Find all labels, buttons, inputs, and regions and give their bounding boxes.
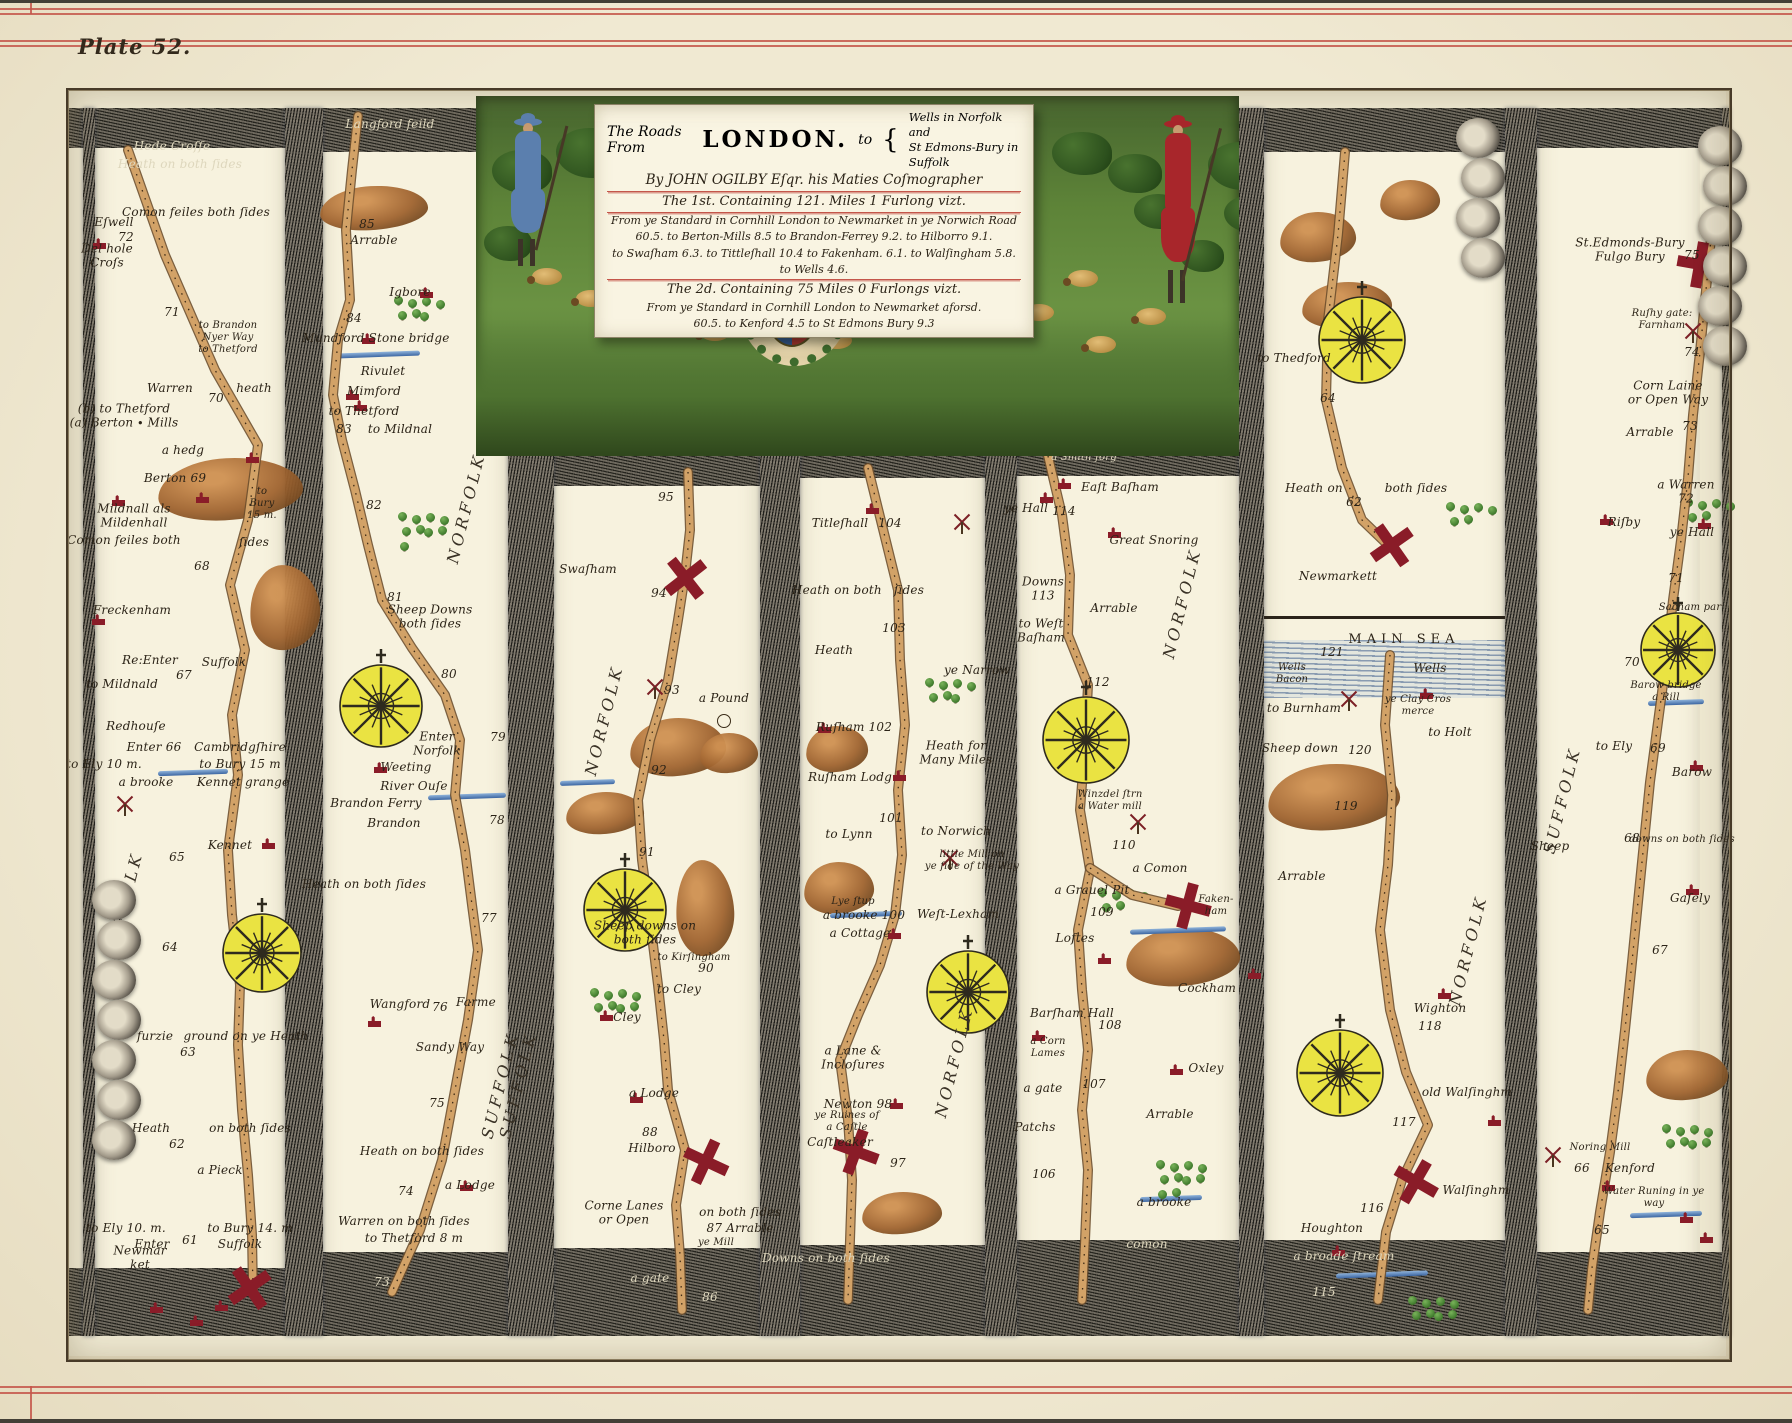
map-label: MAIN SEA — [1348, 632, 1459, 648]
tree-icon — [1156, 1160, 1165, 1169]
map-label: Sheep Downs both ſides — [388, 603, 473, 632]
map-label: Arrable — [1278, 869, 1325, 883]
tree-icon — [1412, 1311, 1421, 1320]
map-label: 93 — [664, 683, 680, 697]
map-label: Heath on both ſides — [302, 877, 426, 891]
windmill-icon — [1544, 1146, 1562, 1168]
map-label: Ruſham Lodg — [808, 770, 892, 784]
map-label: a Corn Lames — [1030, 1036, 1065, 1060]
map-label: Langford feild — [345, 117, 434, 131]
tree-icon — [436, 300, 445, 309]
map-label: 116 — [1360, 1201, 1384, 1215]
sheep-icon — [1086, 336, 1116, 353]
map-label: Gaſely — [1670, 891, 1710, 905]
map-label: 120 — [1348, 743, 1372, 757]
map-label: 103 — [882, 621, 906, 635]
map-label: to Lynn — [825, 827, 872, 841]
tree-icon — [590, 988, 599, 997]
map-label: 83 — [336, 422, 352, 436]
scroll-curl-icon — [1461, 158, 1505, 198]
map-label: a brooke 100 — [823, 908, 905, 922]
map-label: Great Snoring — [1110, 533, 1199, 547]
map-label: a Lodge — [629, 1086, 679, 1100]
map-label: Corn Laine or Open Way — [1628, 379, 1708, 408]
photo-top-edge — [0, 0, 1792, 3]
cartouche-row: 60.5. to Berton-Mills 8.5 to Brandon-Fer… — [607, 229, 1021, 246]
map-label: Riſby — [1608, 515, 1641, 529]
map-label: to Thetford — [329, 404, 400, 418]
tree-icon — [420, 312, 429, 321]
tree-icon — [438, 526, 447, 535]
map-label: 92 — [651, 763, 667, 777]
map-label: Newmar ket — [113, 1244, 166, 1273]
map-label: to Thetford 8 m — [365, 1231, 463, 1245]
map-label: to Ely 10. m. — [86, 1221, 166, 1235]
shepherd-body — [1165, 133, 1191, 211]
tree-icon — [1436, 1297, 1445, 1306]
map-label: Heath for Many Miles — [920, 739, 993, 768]
map-label: Cockham — [1178, 981, 1236, 995]
map-label: 67 — [176, 668, 192, 682]
tree-icon — [1116, 901, 1125, 910]
map-label: 118 — [1418, 1019, 1442, 1033]
map-label: Loftes — [1056, 931, 1095, 945]
tree-icon — [1160, 1175, 1169, 1184]
map-label: 75 — [429, 1096, 445, 1110]
tree-icon — [1408, 1296, 1417, 1305]
scroll-curl-icon — [1461, 238, 1505, 278]
map-label: 74 — [398, 1184, 414, 1198]
map-label: Corne Lanes or Open — [584, 1199, 663, 1228]
map-label: Suffolk — [202, 655, 247, 669]
map-label: 75 — [1684, 248, 1700, 262]
map-label: 119 — [1334, 799, 1358, 813]
map-label: 115 — [1312, 1285, 1336, 1299]
map-label: to Weſt Baſham — [1017, 617, 1065, 646]
map-label: a Lodge — [445, 1178, 495, 1192]
map-label: little Mill on ye ſide of the Way — [925, 849, 1019, 873]
tree-icon — [426, 513, 435, 522]
map-label: a broade ſtream — [1294, 1249, 1395, 1263]
scroll-curl-icon — [1703, 326, 1747, 366]
map-label: Del hole Croſs — [81, 242, 133, 271]
map-label: 76 — [432, 1000, 448, 1014]
cartouche-row: 60.5. to Kenford 4.5 to St Edmons Bury 9… — [607, 316, 1021, 333]
map-label: 64 — [162, 940, 178, 954]
strip-edge — [1239, 108, 1264, 1336]
compass-rose-icon — [1296, 1013, 1384, 1117]
scroll-curl-icon — [1698, 206, 1742, 246]
map-label: 94 — [651, 586, 667, 600]
map-label: to Mildnald — [86, 677, 158, 691]
cartouche-row: to Wells 4.6. — [607, 262, 1021, 280]
red-rule-line — [0, 13, 1792, 15]
cartouche-to-text: to — [858, 132, 872, 148]
map-label: comon — [1126, 1237, 1167, 1251]
scroll-curl-icon — [1698, 126, 1742, 166]
red-rule-line — [0, 45, 1792, 47]
scroll-curl-icon — [97, 1080, 141, 1120]
map-label: Caſtleaker — [807, 1135, 873, 1149]
map-label: 101 — [879, 811, 903, 825]
map-label: 108 — [1098, 1018, 1122, 1032]
map-label: 74 — [1684, 345, 1700, 359]
cartouche-city-text: LONDON. — [702, 126, 848, 153]
cartouche-row: By JOHN OGILBY Eſqr. his Maties Coſmogra… — [607, 170, 1021, 192]
tree-icon — [1474, 503, 1483, 512]
map-label: 79 — [490, 730, 506, 744]
cartouche-row: The 2d. Containing 75 Miles 0 Furlongs v… — [607, 280, 1021, 300]
map-label: Warren on both ſides — [338, 1214, 470, 1228]
map-label: Redhouſe — [106, 719, 166, 733]
map-label: Houghton — [1301, 1221, 1363, 1235]
map-label: both ſides — [1385, 481, 1448, 495]
map-label: to Norwich — [921, 824, 991, 838]
map-label: Sheep down — [1262, 741, 1339, 755]
map-label: Cley — [613, 1010, 641, 1024]
tree-icon — [1688, 513, 1697, 522]
cartouche-row: From ye Standard in Cornhill London to N… — [607, 300, 1021, 317]
map-label: 109 — [1090, 905, 1114, 919]
map-label: 80 — [441, 667, 457, 681]
tree-icon — [953, 679, 962, 688]
map-label: to Bury 15 m. — [247, 486, 277, 522]
map-label: 62 — [1346, 495, 1362, 509]
cartouche-pre-text: The Roads From — [607, 124, 692, 156]
map-label: Wells Bacon — [1276, 662, 1308, 686]
strip-scroll-band — [296, 1252, 534, 1336]
map-label: 73 — [1682, 419, 1698, 433]
shepherd-body — [515, 131, 541, 194]
compass-rose-icon — [222, 897, 302, 993]
cartouche-row: From ye Standard in Cornhill London to N… — [607, 213, 1021, 230]
tree-icon — [1666, 1139, 1675, 1148]
tree-icon — [1170, 1163, 1179, 1172]
tree-icon — [1690, 1125, 1699, 1134]
windmill-icon — [1129, 813, 1147, 835]
shepherd-leg — [518, 239, 523, 266]
map-label: St.Edmonds-Bury Fulgo Bury — [1575, 236, 1685, 265]
map-label: Barow bridge a Rill — [1630, 680, 1701, 704]
tree-icon — [398, 512, 407, 521]
map-label: (b) to Thetford (a) Berton ∙ Mills — [70, 402, 179, 431]
tree-icon — [1198, 1164, 1207, 1173]
map-label: a gate — [1024, 1081, 1063, 1095]
strip-edge — [83, 108, 95, 1336]
map-label: Eaſt Baſham — [1081, 480, 1159, 494]
map-label: to Brandon Nyer Way to Thetford — [198, 320, 257, 356]
scroll-curl-icon — [92, 1040, 136, 1080]
windmill-icon — [116, 795, 134, 817]
road-section-divider — [1264, 616, 1505, 619]
tree-icon — [424, 528, 433, 537]
map-label: a Pound — [699, 691, 749, 705]
map-label: Patchs — [1014, 1120, 1055, 1134]
cartouche-destinations: Wells in Norfolk andSt Edmons-Bury in Su… — [909, 110, 1021, 170]
tree-icon — [1450, 517, 1459, 526]
map-label: furzie — [137, 1029, 173, 1043]
map-label: Heath — [815, 643, 853, 657]
map-label: 64 — [1320, 391, 1336, 405]
map-label: Kennet grange — [197, 775, 290, 789]
map-label: 67 — [1652, 943, 1668, 957]
tree-icon — [398, 311, 407, 320]
map-label: 88 — [642, 1125, 658, 1139]
sheep-icon — [1068, 270, 1098, 287]
compass-rose-icon — [1318, 280, 1406, 384]
map-label: old Walſinghm — [1422, 1085, 1512, 1099]
map-label: 121 — [1320, 645, 1344, 659]
map-label: 78 — [489, 813, 505, 827]
map-label: Newmarkett — [1299, 569, 1377, 583]
map-label: 84 — [346, 311, 362, 325]
map-label: Mimford — [347, 384, 401, 398]
map-label: 70 — [208, 391, 224, 405]
map-label: 68 — [194, 559, 210, 573]
map-label: 71 — [164, 305, 180, 319]
map-label: Lye ſtup — [831, 896, 874, 908]
tree-icon — [1182, 1176, 1191, 1185]
map-label: 66 — [1574, 1161, 1590, 1175]
map-label: Swaſham — [559, 562, 617, 576]
shepherd-leg — [530, 239, 535, 266]
tree-icon — [939, 681, 948, 690]
map-label: 82 — [366, 498, 382, 512]
map-label: Noring Mill — [1570, 1142, 1631, 1154]
tree-icon — [967, 682, 976, 691]
map-label: Downs on both ſides — [762, 1251, 890, 1265]
map-label: on both ſides — [209, 1121, 291, 1135]
map-label: Ruſham 102 — [816, 720, 892, 734]
scroll-curl-icon — [97, 1000, 141, 1040]
tree-icon — [951, 694, 960, 703]
scroll-curl-icon — [92, 960, 136, 1000]
plate-label: Plate 52. — [78, 34, 191, 59]
tree-icon — [408, 299, 417, 308]
map-label: Rivulet — [361, 364, 406, 378]
map-label: Hilboro — [628, 1141, 675, 1155]
map-label: 65 — [169, 850, 185, 864]
map-label: ye Narrow — [944, 663, 1010, 677]
shepherd-figure — [1152, 118, 1204, 303]
red-rule-line — [0, 1386, 1792, 1388]
cartouche-row: to Swaſham 6.3. to Tittleſhall 10.4 to F… — [607, 246, 1021, 263]
map-label: 61 — [182, 1233, 198, 1247]
tree-icon — [1488, 506, 1497, 515]
map-label: River Ouſe — [380, 779, 447, 793]
map-label: Sacham par — [1659, 602, 1722, 614]
scroll-curl-icon — [1456, 118, 1500, 158]
tree-icon — [1184, 1161, 1193, 1170]
map-label: Freckenham — [93, 603, 171, 617]
map-label: to Bury 15 m — [199, 757, 281, 771]
map-label: Sheep downs on both ſides — [594, 919, 696, 948]
red-rule-tick — [30, 1386, 32, 1423]
map-label: Downs 113 — [1022, 575, 1064, 604]
map-label: to Mildnal — [368, 422, 432, 436]
map-label: Titleſhall — [812, 516, 869, 530]
compass-rose-icon — [1042, 680, 1130, 784]
tree-icon — [1688, 1140, 1697, 1149]
map-label: 73 — [374, 1275, 390, 1289]
scroll-curl-icon — [97, 920, 141, 960]
map-label: Arrable — [1090, 601, 1137, 615]
map-label: 65 — [1594, 1223, 1610, 1237]
map-label: Wells — [1413, 661, 1446, 675]
map-label: 85 — [359, 217, 375, 231]
map-label: 91 — [639, 845, 655, 859]
scroll-curl-icon — [1703, 246, 1747, 286]
tree-icon — [1702, 1138, 1711, 1147]
map-label: ye Clay Cros merce — [1385, 694, 1451, 718]
scroll-curl-icon — [1456, 198, 1500, 238]
map-label: Enter Norfolk — [413, 730, 461, 759]
map-label: a Grauel Pit — [1054, 883, 1129, 897]
map-label: 95 — [658, 490, 674, 504]
map-label: to Ely — [1596, 739, 1632, 753]
map-label: 104 — [878, 516, 902, 530]
scene-tree-icon — [1052, 132, 1112, 175]
map-label: 97 — [890, 1156, 906, 1170]
tree-icon — [400, 542, 409, 551]
map-label: Suffolk — [218, 1237, 263, 1251]
scene-tree-icon — [1224, 196, 1239, 232]
map-label: Brandon — [367, 816, 420, 830]
red-rule-line — [0, 40, 1792, 42]
map-label: ye Mill — [698, 1237, 734, 1249]
map-label: Kennet — [208, 838, 252, 852]
tree-icon — [1704, 1128, 1713, 1137]
map-label: ye Ruines of a Caſtle — [815, 1110, 880, 1134]
map-label: downs on both ſides — [1629, 834, 1735, 846]
tree-icon — [1196, 1174, 1205, 1183]
tree-icon — [412, 515, 421, 524]
scroll-curl-icon — [92, 1120, 136, 1160]
map-label: Kenford — [1605, 1161, 1655, 1175]
map-label: 63 — [180, 1045, 196, 1059]
tree-icon — [1434, 1312, 1443, 1321]
map-label: Mildnall als Mildenhall — [97, 502, 171, 531]
map-label: 112 — [1086, 675, 1110, 689]
map-label: Heath on both ſides — [792, 583, 924, 597]
map-label: to Cley — [657, 982, 701, 996]
map-label: 70 — [1624, 655, 1640, 669]
sheep-icon — [532, 268, 562, 285]
map-label: 86 — [702, 1290, 718, 1304]
strip-scroll-band — [991, 1240, 1263, 1336]
map-label: Weeting — [380, 760, 431, 774]
map-label: Heath — [132, 1121, 170, 1135]
map-label: a brooke — [1137, 1195, 1192, 1209]
map-label: to Kirſingham — [658, 952, 731, 964]
map-label: Comon feiles both ſides — [122, 205, 270, 219]
map-label: Igbore — [389, 285, 430, 299]
map-label: Arrable — [350, 233, 397, 247]
tree-icon — [929, 693, 938, 702]
map-label: 106 — [1032, 1167, 1056, 1181]
map-label: to Bury 14. m — [207, 1221, 293, 1235]
map-label: Hede Croſſe — [134, 139, 211, 153]
tree-icon — [402, 527, 411, 536]
map-label: Brandon Ferry — [330, 796, 422, 810]
map-label: Comon feiles both — [67, 533, 181, 547]
map-label: Farme — [456, 995, 496, 1009]
map-label: Sandy Way — [416, 1040, 484, 1054]
red-rule-line — [0, 1392, 1792, 1394]
map-label: Eſwell — [94, 215, 133, 229]
tree-icon — [594, 1003, 603, 1012]
map-label: Heath on both ſides — [118, 157, 242, 171]
strip-edge — [1505, 108, 1537, 1336]
tree-icon — [1662, 1124, 1671, 1133]
windmill-icon — [1340, 690, 1358, 712]
shepherd-leg — [1168, 270, 1173, 303]
map-label: Arrable — [1626, 425, 1673, 439]
map-label: Ruſhy gate: Farnham — [1632, 308, 1693, 332]
shepherd-figure — [502, 116, 554, 266]
strip-edge — [285, 108, 323, 1336]
sheep-icon — [1136, 308, 1166, 325]
map-label: 71 — [1668, 571, 1684, 585]
red-rule-line — [0, 8, 1792, 10]
map-label: 69 — [1650, 741, 1666, 755]
strip-edge — [760, 426, 800, 1336]
tree-icon — [604, 991, 613, 1000]
map-label: Cambridgſhire — [194, 740, 286, 754]
tree-icon — [1448, 1310, 1457, 1319]
map-label: Barow — [1672, 765, 1712, 779]
photo-bottom-edge — [0, 1419, 1792, 1423]
map-label: to Ely 10 m. — [66, 757, 142, 771]
map-label: Re:Enter — [122, 653, 178, 667]
map-label: Warren — [147, 381, 193, 395]
map-label: 117 — [1392, 1115, 1416, 1129]
map-label: 62 — [169, 1137, 185, 1151]
strip-scroll-band — [526, 1248, 785, 1336]
map-label: a Lane & Incloſures — [821, 1044, 884, 1073]
tree-icon — [1446, 502, 1455, 511]
map-label: ſides — [239, 535, 269, 549]
windmill-icon — [953, 513, 971, 535]
map-label: Heath on — [1285, 481, 1343, 495]
map-label: a Warren 72 — [1657, 478, 1714, 507]
tree-icon — [1140, 892, 1149, 901]
tree-icon — [1460, 505, 1469, 514]
map-label: Arrable — [1146, 1107, 1193, 1121]
pound-icon — [717, 714, 731, 728]
map-label: Berton 69 — [144, 471, 206, 485]
strip-scroll-band — [1511, 108, 1726, 148]
tree-icon — [440, 516, 449, 525]
map-label: Weſt-Lexham — [917, 907, 999, 921]
map-label: a hedg — [162, 443, 204, 457]
cartouche-title-row: The Roads FromLONDON.to{Wells in Norfolk… — [607, 110, 1021, 170]
map-label: to Holt — [1428, 725, 1472, 739]
scroll-curl-icon — [92, 880, 136, 920]
compass-rose-icon — [339, 648, 423, 748]
tree-icon — [1464, 515, 1473, 524]
map-label: 77 — [481, 911, 497, 925]
map-label: to Thedford — [1257, 351, 1331, 365]
tree-icon — [925, 678, 934, 687]
map-label: Winzdel ſtrn a Water mill — [1077, 789, 1142, 813]
tree-icon — [1676, 1127, 1685, 1136]
map-label: heath — [236, 381, 272, 395]
tree-icon — [1726, 502, 1735, 511]
map-label: ye Hall — [1004, 501, 1048, 515]
tree-icon — [1450, 1300, 1459, 1309]
windmill-icon — [646, 678, 664, 700]
